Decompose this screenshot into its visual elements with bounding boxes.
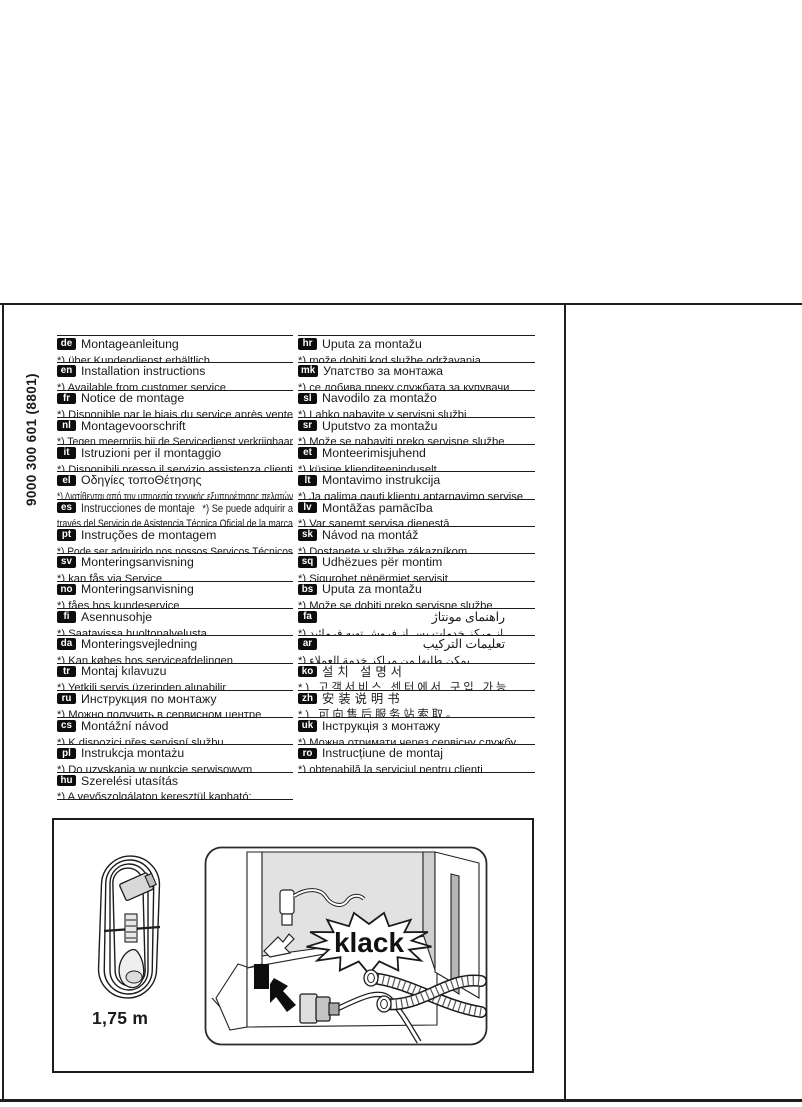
language-title: Montageanleitung bbox=[81, 337, 179, 351]
language-row-bs: bsUputa za montažu*) Može se dobiti prek… bbox=[298, 581, 535, 608]
language-availability-note: *) Saatavissa huoltopalvelusta bbox=[57, 628, 207, 636]
socket-icon bbox=[254, 964, 269, 989]
language-code-badge: tr bbox=[57, 666, 76, 678]
language-code-badge: ro bbox=[298, 748, 317, 760]
left-border-rule bbox=[2, 303, 4, 1100]
language-row-ar: arتعليمات التركيب*) يمكن طلبها من مراكز … bbox=[298, 635, 535, 662]
language-row-cs: csMontážní návod*) K dispozici přes serv… bbox=[57, 717, 293, 744]
language-code-badge: it bbox=[57, 447, 76, 459]
language-title: راهنمای مونتاژ bbox=[432, 610, 505, 624]
language-code-badge: sl bbox=[298, 393, 317, 405]
language-row-ru: ruИнструкция по монтажу*) Можно получить… bbox=[57, 690, 293, 717]
language-title: Montagevoorschrift bbox=[81, 419, 186, 433]
language-availability-note: *) Može se dobiti preko servisne službe bbox=[298, 600, 493, 608]
language-availability-note: *) 可向售后服务站索取。 bbox=[298, 709, 460, 717]
language-availability-note: *) Можна отримати через сервісну службу bbox=[298, 737, 516, 745]
language-title: Notice de montage bbox=[81, 391, 184, 405]
language-code-badge: ru bbox=[57, 693, 76, 705]
language-row-sl: slNavodilo za montažo*) Lahko nabavite v… bbox=[298, 390, 535, 417]
language-title: Navodilo za montažo bbox=[322, 391, 437, 405]
language-row-no: noMonteringsanvisning*) fåes hos kundese… bbox=[57, 581, 293, 608]
language-code-badge: lt bbox=[298, 475, 317, 487]
language-code-badge: no bbox=[57, 584, 76, 596]
language-row-et: etMonteerimisjuhend*) küsige klienditeen… bbox=[298, 444, 535, 471]
language-availability-note: *) Disponibili presso il servizio assist… bbox=[57, 464, 293, 472]
language-code-badge: es bbox=[57, 502, 76, 514]
language-row-en: enInstallation instructions*) Available … bbox=[57, 362, 293, 389]
language-availability-note: *) Lahko nabavite v servisni službi bbox=[298, 409, 467, 417]
language-title: Udhëzues për montim bbox=[322, 555, 442, 569]
language-title: Instrukcja montażu bbox=[81, 746, 184, 760]
language-code-badge: nl bbox=[57, 420, 76, 432]
dishwasher-rear-plug-connection-illustration: klack bbox=[204, 846, 488, 1046]
language-availability-note: *) Dostanete v službe zákazníkom bbox=[298, 546, 467, 554]
language-row-hr: hrUputa za montažu*) može dobiti kod slu… bbox=[298, 335, 535, 362]
language-title: Montaj kılavuzu bbox=[81, 664, 166, 678]
language-row-it: itIstruzioni per il montaggio*) Disponib… bbox=[57, 444, 293, 471]
language-title: Упатство за монтажа bbox=[323, 364, 443, 378]
language-row-da: daMonteringsvejledning*) Kan købes hos s… bbox=[57, 635, 293, 662]
language-row-ro: roInstrucțiune de montaj*) obtenabilă la… bbox=[298, 744, 535, 771]
language-row-ko: ko설치 설명서*) 고객서비스 센터에서 구입 가능 bbox=[298, 663, 535, 690]
language-code-badge: sv bbox=[57, 556, 76, 568]
language-availability-note: *) Do uzyskania w punkcie serwisowym bbox=[57, 764, 252, 772]
language-row-sv: svMonteringsanvisning*) kan fås via Serv… bbox=[57, 553, 293, 580]
language-code-badge: el bbox=[57, 475, 76, 487]
language-title: Installation instructions bbox=[81, 364, 205, 378]
language-column-right: hrUputa za montažu*) može dobiti kod slu… bbox=[298, 335, 535, 773]
language-row-de: deMontageanleitung*) über Kundendienst e… bbox=[57, 335, 293, 362]
language-code-badge: bs bbox=[298, 584, 317, 596]
language-availability-note: *) može dobiti kod službe održavanja bbox=[298, 355, 481, 363]
language-availability-note: *) Kan købes hos serviceafdelingen bbox=[57, 655, 233, 663]
language-row-pt: ptInstruções de montagem*) Pode ser adqu… bbox=[57, 526, 293, 553]
language-code-badge: ko bbox=[298, 666, 317, 678]
language-title: Istruzioni per il montaggio bbox=[81, 446, 221, 460]
language-availability-note: *) Ją galima gauti klientų aptarnavimo s… bbox=[298, 491, 523, 499]
column-divider-rule bbox=[564, 303, 566, 1100]
language-code-badge: fa bbox=[298, 611, 317, 623]
language-code-badge: lv bbox=[298, 502, 317, 514]
cable-tie-icon bbox=[125, 914, 137, 942]
language-code-badge: zh bbox=[298, 693, 317, 705]
language-row-uk: ukІнструкція з монтажу*) Можна отримати … bbox=[298, 717, 535, 744]
language-availability-note: *) über Kundendienst erhältlich bbox=[57, 355, 210, 363]
language-code-badge: hu bbox=[57, 775, 76, 787]
language-row-sk: skNávod na montáž*) Dostanete v službe z… bbox=[298, 526, 535, 553]
language-title: 安装说明书 bbox=[322, 692, 404, 706]
language-title: Návod na montáž bbox=[322, 528, 418, 542]
language-row-el: elΟδηγίες τοποΘέτησης*) Διατίθενται από … bbox=[57, 471, 293, 498]
language-title: Asennusohje bbox=[81, 610, 152, 624]
language-row-lv: lvMontāžas pamācība*) Var saņemt servisa… bbox=[298, 499, 535, 526]
language-availability-note: *) Sigurohet nëpërmjet servisit bbox=[298, 573, 448, 581]
language-row-fa: faراهنمای مونتاژ*) از مرکز خدمات پس از ف… bbox=[298, 608, 535, 635]
language-code-badge: sq bbox=[298, 556, 317, 568]
language-code-badge: hr bbox=[298, 338, 317, 350]
language-row-nl: nlMontagevoorschrift*) Tegen meerprijs b… bbox=[57, 417, 293, 444]
language-availability-note: *) Disponible par le biais du service ap… bbox=[57, 409, 293, 417]
language-availability-note: *) obtenabilă la serviciul pentru clienț… bbox=[298, 764, 483, 772]
language-code-badge: fi bbox=[57, 611, 76, 623]
language-availability-note: *) از مرکز خدمات پس از فروش تهیه فرمائید bbox=[298, 628, 503, 636]
language-row-lt: ltMontavimo instrukcija*) Ją galima gaut… bbox=[298, 471, 535, 498]
language-availability-note: *) Može se nabaviti preko servisne služb… bbox=[298, 436, 504, 444]
language-title: Інструкція з монтажу bbox=[322, 719, 440, 733]
language-availability-note: *) Available from customer service bbox=[57, 382, 226, 390]
bottom-rule bbox=[0, 1099, 802, 1102]
language-title: 설치 설명서 bbox=[322, 665, 406, 679]
language-title: Szerelési utasítás bbox=[81, 774, 178, 788]
language-availability-note: *) K dispozici přes servisní službu bbox=[57, 737, 224, 745]
language-code-badge: fr bbox=[57, 393, 76, 405]
language-title: Instruções de montagem bbox=[81, 528, 216, 542]
language-title: Инструкция по монтажу bbox=[81, 692, 216, 706]
language-availability-note: *) Διατίθενται από την υπηρεσία τεχνικής… bbox=[57, 491, 293, 499]
language-title: Monteringsanvisning bbox=[81, 555, 194, 569]
language-availability-note: *) Можно получить в сервисном центре bbox=[57, 709, 261, 717]
language-availability-note: *) A vevőszolgálaton keresztül kapható: bbox=[57, 791, 252, 799]
language-code-badge: mk bbox=[298, 365, 318, 377]
coiled-power-cable-icon bbox=[84, 850, 184, 1010]
language-title: Monteerimisjuhend bbox=[322, 446, 426, 460]
language-code-badge: en bbox=[57, 365, 76, 377]
language-title: Instrucciones de montaje bbox=[81, 501, 195, 515]
language-code-badge: et bbox=[298, 447, 317, 459]
language-availability-note: *) 고객서비스 센터에서 구입 가능 bbox=[298, 682, 509, 690]
language-code-badge: ar bbox=[298, 638, 317, 650]
language-title: Monteringsvejledning bbox=[81, 637, 197, 651]
language-row-sq: sqUdhëzues për montim*) Sigurohet nëpërm… bbox=[298, 553, 535, 580]
language-availability-note: *) kan fås via Service bbox=[57, 573, 162, 581]
language-title: Uputa za montažu bbox=[322, 582, 422, 596]
language-title: Instrucțiune de montaj bbox=[322, 746, 443, 760]
language-title: Οδηγίες τοποΘέτησης bbox=[81, 473, 202, 487]
language-row-fr: frNotice de montage*) Disponible par le … bbox=[57, 390, 293, 417]
cable-length-label: 1,75 m bbox=[92, 1008, 148, 1029]
language-availability-note: través del Servicio de Asistencia Técnic… bbox=[57, 518, 293, 526]
language-title: Montážní návod bbox=[81, 719, 169, 733]
top-rule bbox=[0, 303, 802, 305]
language-column-left: deMontageanleitung*) über Kundendienst e… bbox=[57, 335, 293, 800]
language-code-badge: pt bbox=[57, 529, 76, 541]
language-title: Montavimo instrukcija bbox=[322, 473, 440, 487]
language-code-badge: sk bbox=[298, 529, 317, 541]
language-availability-note: *) Yetkili servis üzerinden alınabilir bbox=[57, 682, 226, 690]
language-title: Montāžas pamācība bbox=[322, 501, 433, 515]
language-code-badge: cs bbox=[57, 720, 76, 732]
language-row-fi: fiAsennusohje*) Saatavissa huoltopalvelu… bbox=[57, 608, 293, 635]
language-row-mk: mkУпатство за монтажа*) се добива преку … bbox=[298, 362, 535, 389]
klack-sound-label: klack bbox=[334, 927, 404, 958]
cable-plug-icon bbox=[119, 871, 157, 901]
language-title: تعليمات التركيب bbox=[423, 637, 505, 651]
language-row-zh: zh安装说明书*) 可向售后服务站索取。 bbox=[298, 690, 535, 717]
language-row-pl: plInstrukcja montażu*) Do uzyskania w pu… bbox=[57, 744, 293, 771]
language-availability-note: *) Tegen meerprijs bij de Servicedienst … bbox=[57, 436, 293, 444]
language-availability-note: *) Pode ser adquirido nos nossos Serviço… bbox=[57, 546, 293, 554]
language-title-suffix: *) Se puede adquirir a bbox=[202, 503, 293, 515]
document-number-vertical: 9000 300 601 (8801) bbox=[24, 328, 42, 506]
language-availability-note: *) fåes hos kundeservice bbox=[57, 600, 180, 608]
language-row-hu: huSzerelési utasítás*) A vevőszolgálaton… bbox=[57, 772, 293, 799]
language-code-badge: uk bbox=[298, 720, 317, 732]
language-row-tr: trMontaj kılavuzu*) Yetkili servis üzeri… bbox=[57, 663, 293, 690]
language-row-sr: srUputstvo za montažu*) Može se nabaviti… bbox=[298, 417, 535, 444]
installation-figure: 1,75 m kla bbox=[52, 818, 534, 1073]
language-code-badge: sr bbox=[298, 420, 317, 432]
language-availability-note: *) يمكن طلبها من مراكز خدمة العملاء bbox=[298, 655, 470, 663]
language-availability-note: *) се добива преку службата за купувачи bbox=[298, 382, 509, 390]
language-code-badge: de bbox=[57, 338, 76, 350]
language-title: Monteringsanvisning bbox=[81, 582, 194, 596]
language-title: Uputstvo za montažu bbox=[322, 419, 438, 433]
manual-page: 9000 300 601 (8801) deMontageanleitung*)… bbox=[0, 0, 802, 1107]
language-code-badge: da bbox=[57, 638, 76, 650]
language-code-badge: pl bbox=[57, 748, 76, 760]
language-availability-note: *) Var saņemt servisa dienestā bbox=[298, 518, 450, 526]
language-row-es: esInstrucciones de montaje*) Se puede ad… bbox=[57, 499, 293, 526]
language-title: Uputa za montažu bbox=[322, 337, 422, 351]
language-availability-note: *) küsige klienditeeninduselt bbox=[298, 464, 437, 472]
